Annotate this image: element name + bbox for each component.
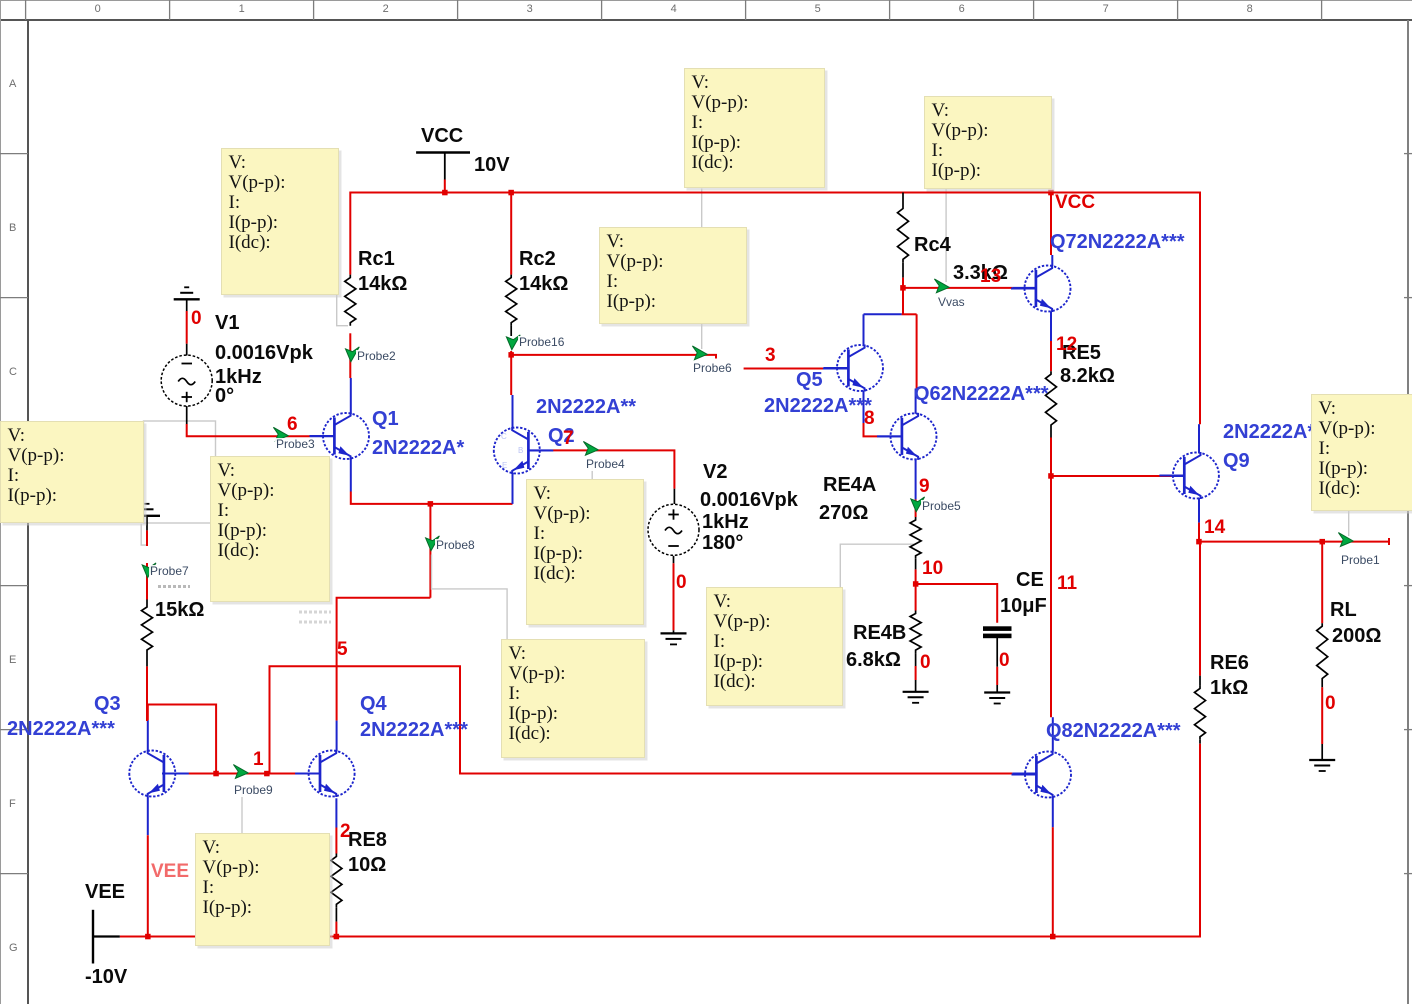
svg-text:E: E xyxy=(502,461,507,470)
svg-text:B: B xyxy=(518,446,523,455)
svg-text:C: C xyxy=(501,432,507,441)
